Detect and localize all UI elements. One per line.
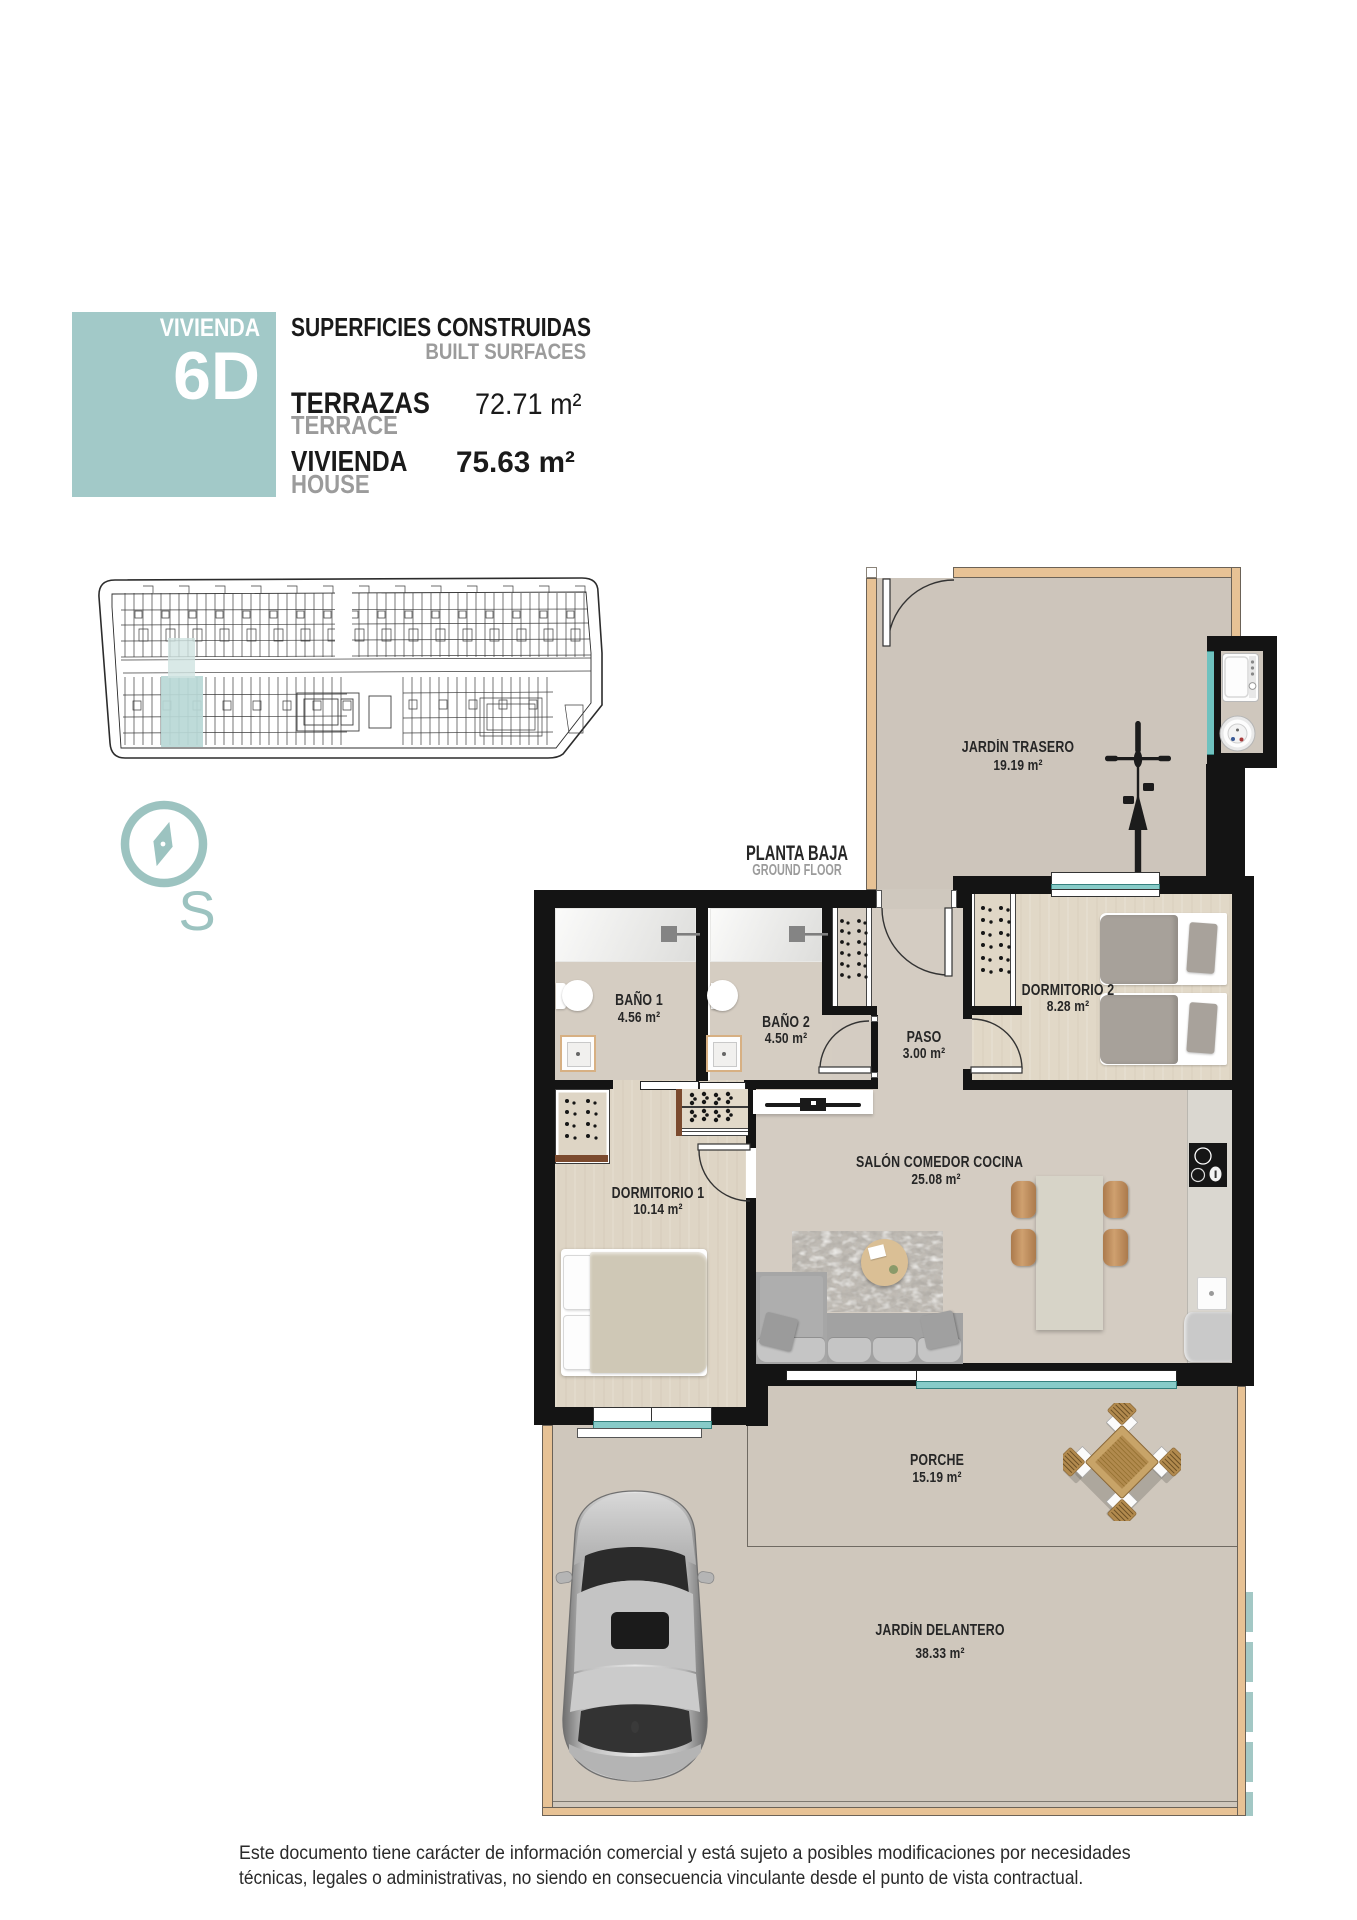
svg-text:S: S — [178, 879, 215, 940]
